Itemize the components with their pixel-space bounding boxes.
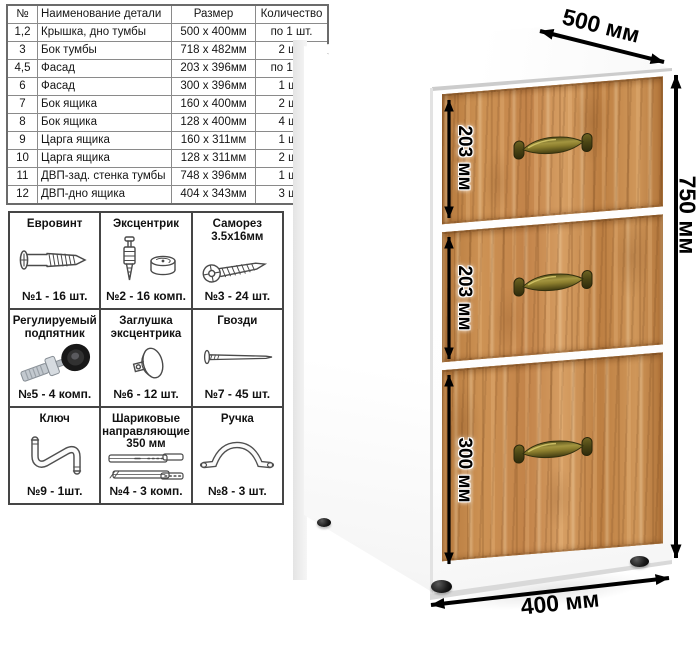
part-name: Бок тумбы	[38, 42, 172, 60]
table-row: 1,2 Крышка, дно тумбы 500 х 400мм по 1 ш…	[7, 24, 328, 42]
hardware-count: №4 - 3 комп.	[109, 484, 182, 503]
hardware-title: Ручка	[221, 408, 254, 426]
table-row: 8 Бок ящика 128 х 400мм 4 шт.	[7, 114, 328, 132]
part-size: 160 х 311мм	[172, 132, 256, 150]
part-size: 128 х 311мм	[172, 150, 256, 168]
part-num: 4,5	[7, 60, 38, 78]
col-header-num: №	[7, 5, 38, 24]
hardware-title: Саморез 3.5х16мм	[211, 213, 263, 244]
drawer2-dimension-label: 203 мм	[453, 265, 475, 330]
part-name: Бок ящика	[38, 96, 172, 114]
drawer-front-bottom	[442, 352, 663, 561]
handle-icon	[196, 426, 278, 484]
hardware-title: Заглушка эксцентрика	[111, 310, 182, 341]
hardware-cell-cam-cover: Заглушка эксцентрика №6 - 12 шт.	[101, 310, 192, 407]
hardware-cell-cam-lock: Эксцентрик №2 - 16 комп.	[101, 213, 192, 310]
euro-screw-icon	[16, 231, 94, 289]
hardware-count: №6 - 12 шт.	[113, 387, 179, 406]
part-name: Бок ящика	[38, 114, 172, 132]
part-name: Фасад	[38, 78, 172, 96]
hardware-title: Евровинт	[27, 213, 83, 231]
height-dimension-label: 750 мм	[674, 176, 700, 255]
part-size: 203 х 396мм	[172, 60, 256, 78]
part-name: ДВП-дно ящика	[38, 186, 172, 205]
table-row: 4,5 Фасад 203 х 396мм по 1 шт.	[7, 60, 328, 78]
hardware-count: №8 - 3 шт.	[208, 484, 267, 503]
drawer-handle	[511, 266, 595, 303]
part-size: 718 х 482мм	[172, 42, 256, 60]
cam-cover-icon	[111, 341, 181, 387]
cabinet-foot	[317, 518, 331, 527]
hardware-title: Шариковые направляющие 350 мм	[102, 408, 190, 452]
hex-key-icon	[19, 426, 91, 484]
parts-table: № Наименование детали Размер Количество …	[6, 4, 329, 205]
table-row: 9 Царга ящика 160 х 311мм 1 шт.	[7, 132, 328, 150]
part-size: 748 х 396мм	[172, 168, 256, 186]
part-num: 7	[7, 96, 38, 114]
table-row: 10 Царга ящика 128 х 311мм 2 шт.	[7, 150, 328, 168]
cabinet-foot	[431, 580, 452, 593]
hardware-count: №9 - 1шт.	[27, 484, 83, 503]
part-num: 3	[7, 42, 38, 60]
ball-slides-icon	[105, 451, 187, 484]
hardware-count: №7 - 45 шт.	[205, 387, 271, 406]
hardware-count: №1 - 16 шт.	[22, 289, 88, 308]
self-tapping-screw-icon	[198, 244, 276, 290]
cabinet-foot	[630, 556, 649, 567]
hardware-cell-hex-key: Ключ №9 - 1шт.	[10, 408, 101, 505]
drawer-front-top	[442, 76, 663, 224]
part-size: 300 х 396мм	[172, 78, 256, 96]
drawer-front-middle	[442, 214, 663, 362]
hardware-title: Эксцентрик	[113, 213, 179, 231]
hardware-title: Регулируемый подпятник	[13, 310, 97, 341]
hardware-cell-adjustable-foot: Регулируемый подпятник №5 - 4 комп.	[10, 310, 101, 407]
table-row: 11 ДВП-зад. стенка тумбы 748 х 396мм 1 ш…	[7, 168, 328, 186]
part-name: Фасад	[38, 60, 172, 78]
col-header-name: Наименование детали	[38, 5, 172, 24]
table-row: 12 ДВП-дно ящика 404 х 343мм 3 шт.	[7, 186, 328, 205]
part-size: 160 х 400мм	[172, 96, 256, 114]
parts-table-header: № Наименование детали Размер Количество	[7, 5, 328, 24]
hardware-cell-handle: Ручка №8 - 3 шт.	[193, 408, 284, 505]
assembly-sheet: № Наименование детали Размер Количество …	[0, 0, 700, 648]
col-header-qty: Количество	[256, 5, 329, 24]
part-name: ДВП-зад. стенка тумбы	[38, 168, 172, 186]
nail-icon	[198, 328, 276, 386]
drawer1-dimension-label: 203 мм	[453, 125, 475, 190]
adjustable-foot-icon	[15, 341, 95, 387]
part-num: 8	[7, 114, 38, 132]
cam-lock-icon	[106, 231, 186, 289]
hardware-cell-self-tapping-screw: Саморез 3.5х16мм №3 - 24 шт.	[193, 213, 284, 310]
part-name: Крышка, дно тумбы	[38, 24, 172, 42]
part-name: Царга ящика	[38, 132, 172, 150]
part-num: 9	[7, 132, 38, 150]
hardware-title: Гвозди	[217, 310, 257, 328]
part-size: 128 х 400мм	[172, 114, 256, 132]
table-row: 7 Бок ящика 160 х 400мм 2 шт.	[7, 96, 328, 114]
col-header-size: Размер	[172, 5, 256, 24]
hardware-cell-ball-slides: Шариковые направляющие 350 мм №4 - 3 ком…	[101, 408, 192, 505]
part-num: 11	[7, 168, 38, 186]
drawer-handle	[511, 433, 595, 470]
part-size: 404 х 343мм	[172, 186, 256, 205]
hardware-count: №5 - 4 комп.	[18, 387, 91, 406]
part-size: 500 х 400мм	[172, 24, 256, 42]
hardware-cell-nail: Гвозди №7 - 45 шт.	[193, 310, 284, 407]
part-num: 10	[7, 150, 38, 168]
table-row: 6 Фасад 300 х 396мм 1 шт.	[7, 78, 328, 96]
part-qty: по 1 шт.	[256, 24, 329, 42]
hardware-grid: Евровинт №1 - 16 шт. Эксцентрик	[8, 211, 284, 505]
part-name: Царга ящика	[38, 150, 172, 168]
part-num: 6	[7, 78, 38, 96]
part-num: 1,2	[7, 24, 38, 42]
hardware-title: Ключ	[39, 408, 69, 426]
hardware-cell-euro-screw: Евровинт №1 - 16 шт.	[10, 213, 101, 310]
table-row: 3 Бок тумбы 718 х 482мм 2 шт.	[7, 42, 328, 60]
drawer3-dimension-label: 300 мм	[453, 437, 475, 502]
drawer-handle	[511, 129, 595, 166]
hardware-count: №3 - 24 шт.	[205, 289, 271, 308]
hardware-count: №2 - 16 комп.	[106, 289, 186, 308]
part-num: 12	[7, 186, 38, 205]
